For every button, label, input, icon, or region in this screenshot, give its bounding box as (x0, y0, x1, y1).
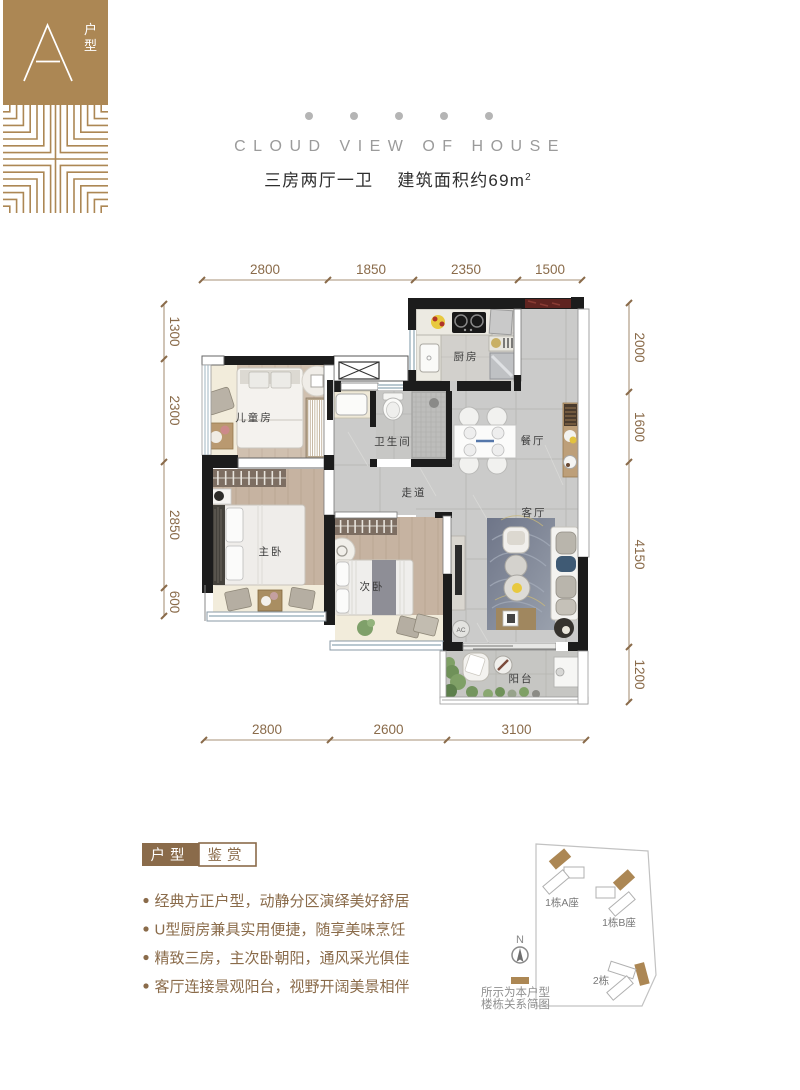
svg-text:型: 型 (84, 38, 97, 53)
svg-text:1栋A座: 1栋A座 (545, 896, 579, 909)
svg-text:1600: 1600 (632, 412, 647, 442)
svg-text:所示为本户型: 所示为本户型 (481, 985, 550, 999)
svg-text:楼栋关系简图: 楼栋关系简图 (481, 997, 550, 1011)
svg-text:600: 600 (167, 591, 182, 614)
svg-text:1500: 1500 (535, 262, 565, 277)
svg-text:餐厅: 餐厅 (521, 434, 546, 447)
svg-text:2800: 2800 (250, 262, 280, 277)
svg-text:卫生间: 卫生间 (374, 435, 412, 448)
svg-text:2800: 2800 (252, 722, 282, 737)
svg-text:1850: 1850 (356, 262, 386, 277)
svg-text:N: N (516, 934, 524, 946)
svg-text:儿童房: 儿童房 (235, 411, 273, 424)
svg-text:经典方正户型，动静分区演绎美好舒居: 经典方正户型，动静分区演绎美好舒居 (155, 893, 410, 910)
svg-text:鉴赏: 鉴赏 (208, 847, 247, 864)
svg-text:走道: 走道 (402, 486, 427, 499)
svg-text:2350: 2350 (451, 262, 481, 277)
svg-text:2300: 2300 (167, 395, 182, 425)
svg-text:户型: 户型 (151, 847, 190, 864)
svg-text:1300: 1300 (167, 316, 182, 346)
svg-text:客厅连接景观阳台，视野开阔美景相伴: 客厅连接景观阳台，视野开阔美景相伴 (155, 979, 410, 996)
svg-text:U型厨房兼具实用便捷，随享美味烹饪: U型厨房兼具实用便捷，随享美味烹饪 (155, 921, 406, 939)
svg-text:4150: 4150 (632, 539, 647, 569)
svg-text:AC: AC (456, 627, 465, 634)
svg-text:2000: 2000 (632, 332, 647, 362)
svg-text:CLOUD VIEW OF HOUSE: CLOUD VIEW OF HOUSE (234, 138, 566, 155)
svg-text:三房两厅一卫 建筑面积约69m2: 三房两厅一卫 建筑面积约69m2 (264, 171, 532, 190)
svg-text:1栋B座: 1栋B座 (602, 916, 636, 929)
svg-text:次卧: 次卧 (360, 580, 385, 593)
svg-text:客厅: 客厅 (522, 506, 547, 519)
svg-text:主卧: 主卧 (259, 545, 284, 558)
svg-text:2600: 2600 (373, 722, 403, 737)
svg-text:2栋: 2栋 (593, 974, 610, 987)
svg-text:精致三房，主次卧朝阳，通风采光俱佳: 精致三房，主次卧朝阳，通风采光俱佳 (155, 950, 410, 967)
svg-text:户: 户 (84, 22, 97, 37)
svg-text:2850: 2850 (167, 510, 182, 540)
svg-text:3100: 3100 (501, 722, 531, 737)
svg-text:厨房: 厨房 (454, 350, 479, 363)
svg-text:阳台: 阳台 (509, 672, 534, 685)
svg-text:1200: 1200 (632, 659, 647, 689)
